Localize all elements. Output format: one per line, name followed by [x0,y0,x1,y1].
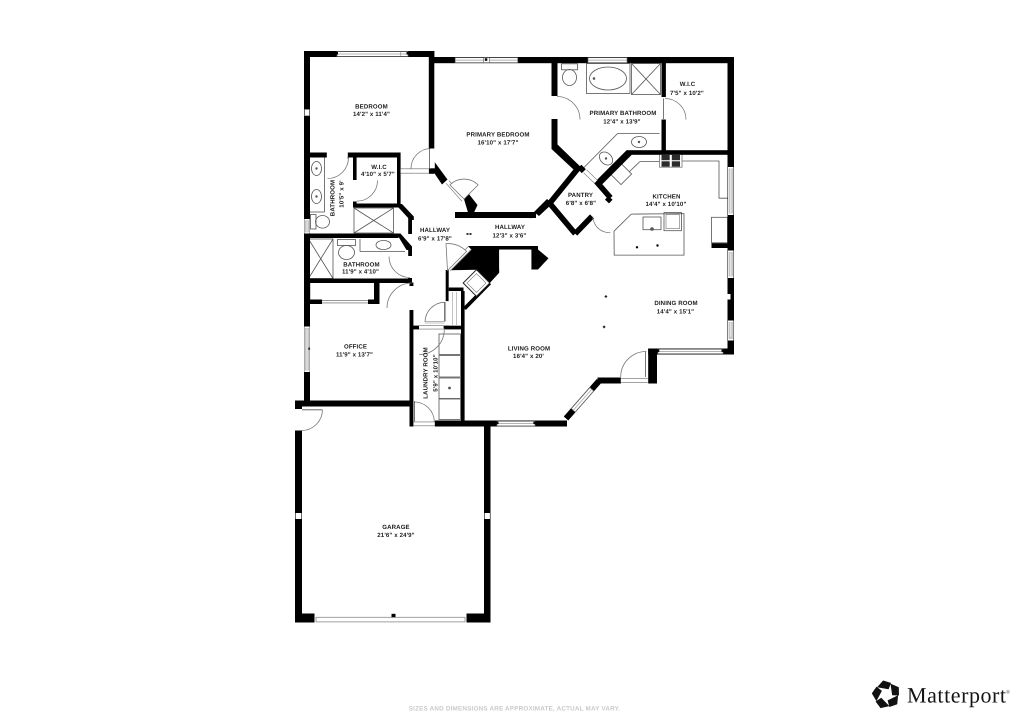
svg-text:HALLWAY: HALLWAY [420,227,450,234]
svg-text:12'3" x 3'6": 12'3" x 3'6" [493,232,527,239]
svg-text:PRIMARY BEDROOM: PRIMARY BEDROOM [466,131,529,138]
svg-text:LIVING ROOM: LIVING ROOM [508,345,550,352]
svg-text:®: ® [1006,690,1010,696]
svg-text:PRIMARY BATHROOM: PRIMARY BATHROOM [590,109,657,116]
svg-text:GARAGE: GARAGE [382,524,410,531]
svg-text:OFFICE: OFFICE [344,343,367,350]
svg-text:DINING ROOM: DINING ROOM [654,299,697,306]
svg-text:KITCHEN: KITCHEN [653,193,681,200]
svg-text:4'10" x 5'7": 4'10" x 5'7" [361,171,395,178]
svg-text:BEDROOM: BEDROOM [355,103,388,110]
svg-text:21'6" x 24'9": 21'6" x 24'9" [377,531,414,538]
svg-text:W.I.C: W.I.C [680,81,696,88]
svg-text:11'9" x 4'10": 11'9" x 4'10" [342,268,379,275]
svg-text:Matterport: Matterport [907,683,1007,708]
svg-text:6'9" x 17'8": 6'9" x 17'8" [418,235,452,242]
svg-text:14'4" x 15'1": 14'4" x 15'1" [657,308,694,315]
svg-text:16'10" x 17'7": 16'10" x 17'7" [478,139,519,146]
svg-text:16'4" x 20': 16'4" x 20' [513,353,544,360]
svg-text:PANTRY: PANTRY [568,192,593,199]
svg-text:SIZES AND DIMENSIONS ARE APPRO: SIZES AND DIMENSIONS ARE APPROXIMATE, AC… [409,705,621,712]
svg-text:5'9" x 10'10": 5'9" x 10'10" [432,354,439,391]
svg-text:BATHROOM: BATHROOM [343,261,379,268]
svg-text:HALLWAY: HALLWAY [495,224,525,231]
svg-text:14'2" x 11'4": 14'2" x 11'4" [353,111,390,118]
svg-text:14'4" x 10'10": 14'4" x 10'10" [646,201,687,208]
svg-text:7'5" x 10'2": 7'5" x 10'2" [670,90,704,97]
svg-text:LAUNDRY ROOM: LAUNDRY ROOM [422,347,429,399]
svg-text:11'9" x 13'7": 11'9" x 13'7" [336,351,373,358]
svg-text:6'8" x 6'8": 6'8" x 6'8" [566,199,596,206]
svg-text:12'4" x 13'9": 12'4" x 13'9" [603,118,640,125]
svg-text:W.I.C: W.I.C [371,164,387,171]
svg-text:BATHROOM: BATHROOM [329,180,336,216]
svg-text:10'5" x 9': 10'5" x 9' [338,180,345,207]
